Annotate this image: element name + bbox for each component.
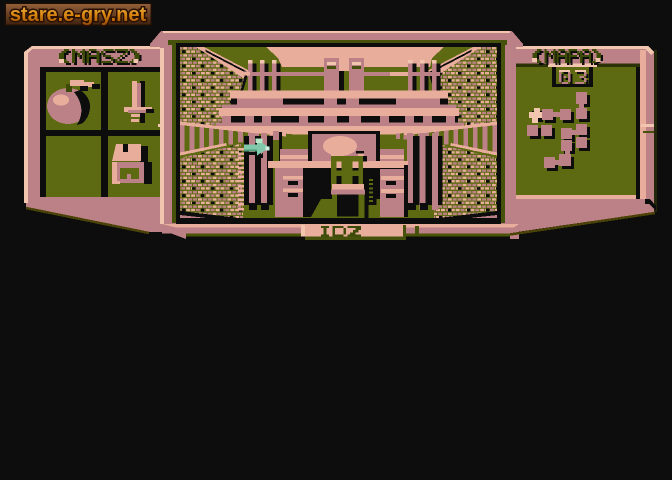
svg-text:stare.e-gry.net: stare.e-gry.net xyxy=(10,4,147,26)
